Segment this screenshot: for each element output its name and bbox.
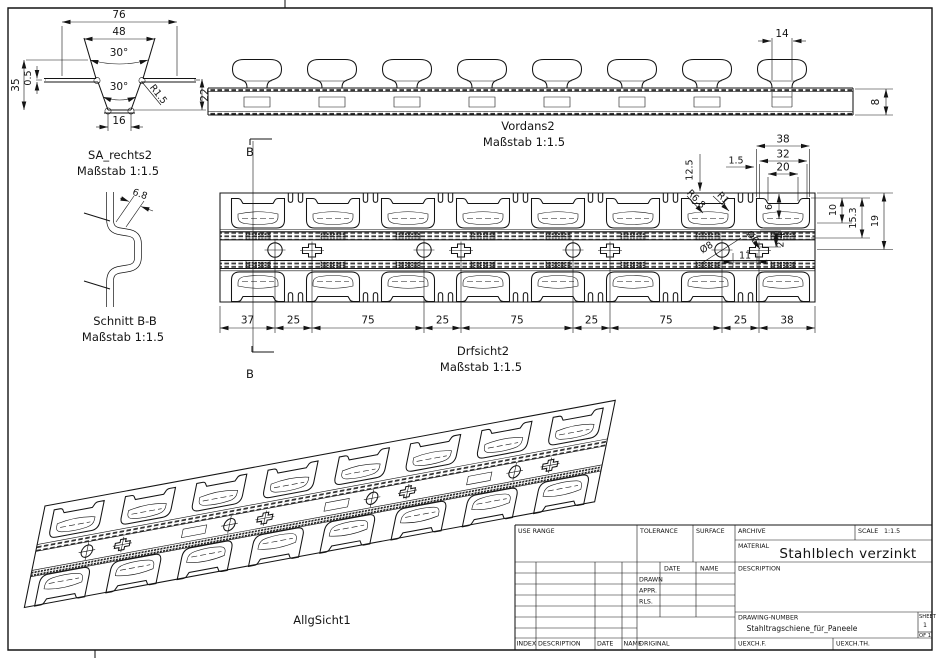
dim-r1-5: R1.5: [147, 83, 169, 107]
dim-8: 8: [870, 99, 882, 106]
tb-scale-label: SCALE: [858, 528, 878, 535]
view-profile-title: SA_rechts2: [88, 148, 152, 162]
view-front-scale: Maßstab 1:1.5: [483, 135, 565, 149]
dim-r6-8: R6.8: [684, 188, 707, 211]
tb-archive: ARCHIVE: [738, 528, 766, 535]
dim-16: 16: [112, 115, 126, 127]
chain-dim: 25: [436, 315, 449, 327]
tb-material-value: Stahlblech verzinkt: [779, 546, 916, 562]
tb-rls: RLS.: [639, 599, 653, 606]
chain-dim: 25: [585, 315, 598, 327]
view-front-title: Vordans2: [501, 119, 554, 133]
dim-6: 6: [764, 204, 775, 210]
cad-drawing-sheet: 76 48 30° 30° 35 0.5 22 16 R1.5 SA_recht…: [0, 0, 940, 658]
tb-sheet-label: SHEET: [919, 614, 937, 620]
dim-dia8: Ø8: [698, 240, 715, 257]
dim-48: 48: [112, 26, 125, 38]
web-holes: [244, 92, 792, 107]
dim-15-3: 15.3: [848, 207, 859, 228]
dim-0-5: 0.5: [23, 70, 34, 85]
dim-r1: R1: [714, 190, 731, 207]
tb-date-label: DATE: [664, 566, 680, 573]
dim-19: 19: [870, 215, 881, 227]
dim-32: 32: [776, 149, 789, 161]
view-plan: Drfsicht2 Maßstab 1:1.5 B: [220, 193, 815, 381]
dim-1-5: 1.5: [728, 156, 743, 167]
dim-14: 14: [775, 28, 789, 40]
tb-tolerance-label: TOLERANCE: [639, 528, 678, 535]
tb-date-bottom: DATE: [597, 641, 613, 648]
tb-uexchf: UEXCH.F.: [738, 641, 766, 648]
chain-dim: 25: [287, 315, 300, 327]
dim-6-8: 6.8: [131, 187, 149, 202]
view-section-bb: 6.8 Schnitt B-B Maßstab 1:1.5: [82, 187, 164, 344]
tb-sheet-value: 1: [923, 622, 927, 629]
tb-surface: SURFACE: [696, 528, 725, 535]
view-plan-scale: Maßstab 1:1.5: [440, 360, 522, 374]
tb-drawn: DRAWN: [639, 577, 663, 584]
tb-name-label: NAME: [700, 566, 718, 573]
title-block: USE RANGE TOLERANCE SURFACE ARCHIVE SCAL…: [515, 525, 937, 650]
tb-index: INDEX: [517, 641, 537, 648]
tb-original: ORIGINAL: [639, 641, 670, 648]
section-marker-b-bottom: B: [246, 367, 254, 381]
tb-drawing-number-label: DRAWING-NUMBER: [738, 615, 799, 622]
view-isometric: [7, 400, 633, 608]
chain-dim: 25: [734, 315, 747, 327]
tb-description: DESCRIPTION: [738, 566, 781, 573]
dim-angle-bottom: 30°: [110, 81, 129, 93]
view-profile-scale: Maßstab 1:1.5: [77, 164, 159, 178]
chain-dim: 37: [241, 315, 254, 327]
dim-2-4: 2.4: [776, 232, 787, 247]
tb-uexchth: UEXCH.TH.: [836, 641, 870, 648]
view-plan-title: Drfsicht2: [457, 344, 509, 358]
tb-description-bottom: DESCRIPTION: [538, 641, 581, 648]
tb-use-range: USE RANGE: [518, 528, 555, 535]
tb-material-label: MATERIAL: [738, 543, 770, 550]
chain-dim: 75: [659, 315, 672, 327]
view-profile-section: 76 48 30° 30° 35 0.5 22 16 R1.5 SA_recht…: [10, 9, 211, 178]
chain-dim: 75: [361, 315, 374, 327]
dim-76: 76: [112, 9, 126, 21]
tb-appr: APPR.: [639, 588, 657, 595]
view-iso-title: AllgSicht1: [293, 613, 351, 627]
view-front: 14 8 B Vordans2 Maßstab 1:1.5: [208, 28, 893, 352]
dim-35: 35: [10, 78, 22, 91]
chain-dim: 38: [780, 315, 793, 327]
section-marker-b-top: B: [246, 145, 254, 159]
dim-20: 20: [776, 162, 789, 174]
dim-angle-top: 30°: [110, 47, 129, 59]
dim-11: 11: [739, 251, 751, 262]
dim-10: 10: [828, 204, 839, 216]
chain-dim: 75: [510, 315, 523, 327]
tb-drawing-number: Stahltragschiene_für_Paneele: [747, 624, 858, 633]
view-section-title: Schnitt B-B: [93, 314, 157, 328]
view-section-scale: Maßstab 1:1.5: [82, 330, 164, 344]
tb-scale-value: 1:1.5: [884, 528, 900, 535]
dim-38: 38: [776, 134, 789, 146]
drawing-canvas: 76 48 30° 30° 35 0.5 22 16 R1.5 SA_recht…: [0, 0, 940, 658]
tb-of-value: OF 1: [919, 633, 931, 639]
dim-12-5: 12.5: [685, 159, 696, 180]
